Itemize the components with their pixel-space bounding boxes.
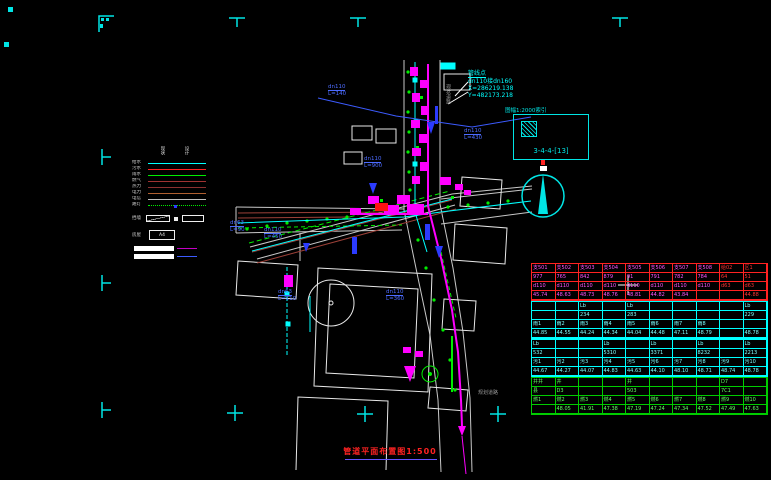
- table-cell: 燃5: [626, 396, 650, 405]
- table-cell: 47.11: [673, 329, 697, 338]
- blue-line-icon: [177, 256, 197, 257]
- pipe-length: L=90: [230, 227, 245, 233]
- pipe-length: L=450: [264, 234, 282, 240]
- table-cell: 532: [532, 349, 556, 358]
- table-cell: 雨4: [603, 320, 627, 329]
- sheet-number: 3-4-4-[13]: [514, 147, 588, 155]
- table-cell: 雨6: [650, 320, 674, 329]
- table-cell: [556, 302, 580, 311]
- pipe-label: dn63L=110: [278, 289, 296, 302]
- pipe-length: L=430: [464, 135, 482, 141]
- table-cell: 燃8: [697, 396, 721, 405]
- legend-item-label: 热力: [132, 184, 148, 189]
- table-cell: [673, 302, 697, 311]
- table-cell: 48.10: [673, 367, 697, 376]
- table-cell: 48.73: [579, 291, 603, 300]
- table-cell: 41.91: [579, 405, 603, 414]
- table-cell: [556, 311, 580, 320]
- table-cell: 44.24: [579, 329, 603, 338]
- red-marker: [375, 203, 388, 211]
- table-cell: 44.63: [626, 367, 650, 376]
- pipe-length: L=360: [386, 296, 404, 302]
- table-cell: [532, 405, 556, 414]
- table-cell: 45.74: [532, 291, 556, 300]
- table-cell: 支504: [603, 264, 627, 273]
- pipe-diameter: dn110: [386, 289, 403, 296]
- table-cell: [720, 340, 744, 349]
- table-cell: 给02: [720, 264, 744, 273]
- pipe-diameter: dn110: [464, 128, 481, 135]
- survey-annotation: 管线点 dn110接dn160 X=286219.138 Y=482173.21…: [468, 70, 513, 99]
- table-cell: 977: [532, 273, 556, 282]
- legend-item: 路灯: [132, 204, 228, 210]
- table-cell: 48.74: [720, 367, 744, 376]
- table-cell: 48.81: [626, 291, 650, 300]
- table-cell: 48.79: [697, 329, 721, 338]
- cad-canvas: 管线点 dn110接dn160 X=286219.138 Y=482173.21…: [0, 0, 771, 480]
- table-block: LbLbLbLbLb5325310337182322213污1污2污3污4污5污…: [531, 339, 768, 377]
- table-cell: 区1: [744, 264, 768, 273]
- table-cell: d110: [556, 282, 580, 291]
- table-cell: [720, 302, 744, 311]
- table-cell: Lb: [532, 340, 556, 349]
- table-cell: [556, 349, 580, 358]
- table-cell: 48.71: [697, 367, 721, 376]
- table-cell: [556, 340, 580, 349]
- roads-layer: [236, 60, 532, 472]
- table-cell: [650, 378, 674, 387]
- table-cell: 污10: [744, 358, 768, 367]
- table-cell: 44.83: [603, 367, 627, 376]
- table-cell: 雨8: [697, 320, 721, 329]
- table-cell: Lb: [626, 302, 650, 311]
- table-cell: [720, 291, 744, 300]
- table-cell: 县: [532, 387, 556, 396]
- survey-y: Y=482173.218: [468, 92, 513, 99]
- table-cell: 44.27: [556, 367, 580, 376]
- table-cell: 污5: [626, 358, 650, 367]
- table-cell: 燃1: [532, 396, 556, 405]
- road-label: 规划道路: [478, 389, 498, 396]
- table-cell: [532, 302, 556, 311]
- table-cell: 燃2: [556, 396, 580, 405]
- green-dots: [245, 70, 509, 391]
- table-cell: [673, 311, 697, 320]
- road-bar-icon: [134, 246, 174, 251]
- table-cell: 229: [744, 311, 768, 320]
- table-cell: [673, 387, 697, 396]
- table-cell: 91: [626, 273, 650, 282]
- legend-line-icon: [148, 199, 206, 200]
- legend-marker-icon: [174, 205, 177, 208]
- north-arrow: [522, 160, 564, 217]
- table-cell: 48.78: [744, 329, 768, 338]
- table-cell: Lb: [579, 302, 603, 311]
- table-cell: [744, 320, 768, 329]
- legend-col2: 设计: [184, 146, 189, 155]
- table-cell: 污7: [673, 358, 697, 367]
- table-cell: 污4: [603, 358, 627, 367]
- table-cell: 44.07: [579, 367, 603, 376]
- table-cell: [744, 378, 768, 387]
- table-cell: Lb: [603, 340, 627, 349]
- table-cell: 44.34: [603, 329, 627, 338]
- road-bar-icon: [134, 254, 174, 259]
- legend-line-icon: [148, 205, 206, 206]
- magenta-line-icon: [177, 248, 197, 249]
- table-cell: 47.38: [603, 405, 627, 414]
- table-cell: 8232: [697, 349, 721, 358]
- table-cell: [603, 387, 627, 396]
- table-cell: d110: [579, 282, 603, 291]
- pipe-diameter: dn63: [230, 220, 244, 227]
- survey-title: 管线点: [468, 70, 486, 78]
- table-cell: 5310: [603, 349, 627, 358]
- table-cell: 43.84: [673, 291, 697, 300]
- table-cell: 782: [673, 273, 697, 282]
- table-block: 支501支502支503支504支505支506支507支508给02区1977…: [531, 263, 768, 301]
- table-cell: 燃6: [650, 396, 674, 405]
- legend-item-label: 燃气: [132, 178, 148, 183]
- road-label: 现状道路: [445, 84, 452, 104]
- table-cell: 污6: [650, 358, 674, 367]
- table-cell: [626, 340, 650, 349]
- table-cell: [697, 291, 721, 300]
- building-box-icon: A4: [149, 230, 175, 240]
- table-cell: D3: [556, 387, 580, 396]
- table-cell: D7: [720, 378, 744, 387]
- table-cell: [626, 349, 650, 358]
- table-cell: d63: [720, 282, 744, 291]
- table-cell: d110: [603, 282, 627, 291]
- table-cell: 503: [626, 387, 650, 396]
- box-icon: [182, 215, 204, 222]
- table-block: 井井井井D7县D35037C1燃1燃2燃3燃4燃5燃6燃7燃8燃9燃1048.0…: [531, 377, 768, 415]
- table-block: LbLbLb234283229雨1雨2雨3雨4雨5雨6雨7雨844.8544.5…: [531, 301, 768, 339]
- table-cell: 784: [697, 273, 721, 282]
- legend-item-label: 电力: [132, 190, 148, 195]
- table-cell: [579, 387, 603, 396]
- pipe-length: L=900: [364, 163, 382, 169]
- table-cell: d63: [744, 282, 768, 291]
- table-cell: 283: [626, 311, 650, 320]
- table-cell: 64: [720, 273, 744, 282]
- table-cell: 765: [556, 273, 580, 282]
- table-cell: [720, 320, 744, 329]
- table-cell: 雨5: [626, 320, 650, 329]
- table-cell: 燃4: [603, 396, 627, 405]
- legend-line-icon: [148, 169, 206, 170]
- legend-item-label: 给水: [132, 160, 148, 165]
- table-cell: [720, 329, 744, 338]
- legend: 现状 设计 给水污水雨水燃气热力电力电信路灯 挡墙 房屋 A4: [132, 146, 228, 266]
- table-cell: [697, 302, 721, 311]
- pipe-label: dn110L=360: [386, 289, 404, 302]
- table-cell: 47.24: [650, 405, 674, 414]
- table-cell: Lb: [744, 340, 768, 349]
- table-cell: [697, 387, 721, 396]
- table-cell: 234: [579, 311, 603, 320]
- table-cell: 燃10: [744, 396, 768, 405]
- hatch-square-icon: [521, 121, 537, 137]
- table-cell: [650, 302, 674, 311]
- table-cell: 支501: [532, 264, 556, 273]
- table-cell: [603, 378, 627, 387]
- table-cell: 44.67: [532, 367, 556, 376]
- table-cell: [579, 340, 603, 349]
- table-cell: 3371: [650, 349, 674, 358]
- magenta-structures: [284, 67, 471, 382]
- table-cell: 井: [626, 378, 650, 387]
- table-cell: 44.85: [532, 329, 556, 338]
- pipe-label: dn63L=90: [230, 220, 245, 233]
- legend-line-icon: [148, 193, 206, 194]
- pipe-diameter: dn110: [328, 84, 345, 91]
- legend-line-icon: [148, 175, 206, 176]
- table-cell: 48.78: [744, 367, 768, 376]
- table-cell: d110: [697, 282, 721, 291]
- table-cell: 燃9: [720, 396, 744, 405]
- detail-caption: 图幅1:2000索引: [505, 106, 546, 114]
- table-cell: Lb: [697, 340, 721, 349]
- table-cell: [673, 340, 697, 349]
- title-underline: [345, 459, 437, 460]
- table-cell: 支505: [626, 264, 650, 273]
- table-cell: [744, 387, 768, 396]
- table-cell: 污9: [720, 358, 744, 367]
- table-cell: 47.19: [626, 405, 650, 414]
- table-cell: [720, 349, 744, 358]
- table-cell: [720, 311, 744, 320]
- table-cell: 47.49: [720, 405, 744, 414]
- detail-index-box: 3-4-4-[13]: [513, 114, 589, 160]
- legend-item-label: 雨水: [132, 172, 148, 177]
- table-cell: [603, 311, 627, 320]
- table-cell: 44.55: [556, 329, 580, 338]
- legend-wall-row: 挡墙: [132, 214, 228, 224]
- table-cell: 48.76: [603, 291, 627, 300]
- table-cell: 48.05: [556, 405, 580, 414]
- elevation-table: 支501支502支503支504支505支506支507支508给02区1977…: [531, 263, 768, 415]
- diagonal-box-icon: [146, 215, 170, 222]
- table-cell: 44.04: [626, 329, 650, 338]
- legend-building-row: 房屋 A4: [132, 230, 228, 241]
- table-cell: [650, 387, 674, 396]
- pipe-length: L=110: [278, 296, 296, 302]
- legend-item-label: 污水: [132, 166, 148, 171]
- table-cell: [650, 311, 674, 320]
- table-cell: d110: [532, 282, 556, 291]
- pipe-diameter: dn110: [264, 227, 281, 234]
- table-cell: [603, 302, 627, 311]
- table-cell: 支508: [697, 264, 721, 273]
- survey-x: X=286219.138: [468, 85, 513, 92]
- table-cell: 44.10: [650, 367, 674, 376]
- table-cell: 污8: [697, 358, 721, 367]
- pipe-label: dn110L=900: [364, 156, 382, 169]
- table-cell: [673, 378, 697, 387]
- table-cell: 污2: [556, 358, 580, 367]
- drawing-title: 管道平面布置图1:500: [330, 446, 450, 457]
- table-cell: 2213: [744, 349, 768, 358]
- table-cell: 791: [650, 273, 674, 282]
- table-cell: 支507: [673, 264, 697, 273]
- table-cell: 雨1: [532, 320, 556, 329]
- table-cell: [579, 349, 603, 358]
- table-cell: 支503: [579, 264, 603, 273]
- table-cell: [697, 378, 721, 387]
- table-cell: 879: [603, 273, 627, 282]
- table-cell: 44.88: [744, 291, 768, 300]
- table-cell: [697, 311, 721, 320]
- table-cell: 井井: [532, 378, 556, 387]
- table-cell: 污1: [532, 358, 556, 367]
- table-cell: 雨2: [556, 320, 580, 329]
- legend-line-icon: [148, 181, 206, 182]
- table-cell: 7C1: [720, 387, 744, 396]
- table-cell: 燃3: [579, 396, 603, 405]
- table-cell: 842: [579, 273, 603, 282]
- legend-item-label: 路灯: [132, 202, 148, 207]
- table-cell: 井: [556, 378, 580, 387]
- table-cell: 44.48: [650, 329, 674, 338]
- table-cell: 雨3: [579, 320, 603, 329]
- pipe-label: dn110L=140: [328, 84, 346, 97]
- pipe-label: dn110L=430: [464, 128, 482, 141]
- table-cell: 48.63: [556, 291, 580, 300]
- table-cell: 燃7: [673, 396, 697, 405]
- survey-pipe: dn110接dn160: [468, 78, 513, 85]
- table-cell: 支502: [556, 264, 580, 273]
- pipe-label: dn110L=450: [264, 227, 282, 240]
- pipe-length: L=140: [328, 91, 346, 97]
- table-cell: 47.63: [744, 405, 768, 414]
- legend-col1: 现状: [160, 146, 165, 155]
- table-cell: 44.82: [650, 291, 674, 300]
- legend-item-label: 电信: [132, 196, 148, 201]
- table-cell: d110: [626, 282, 650, 291]
- table-cell: d110: [673, 282, 697, 291]
- legend-line-icon: [148, 187, 206, 188]
- legend-line-icon: [148, 163, 206, 164]
- table-cell: 47.52: [697, 405, 721, 414]
- table-cell: 雨7: [673, 320, 697, 329]
- table-cell: [532, 311, 556, 320]
- table-cell: 51: [744, 273, 768, 282]
- square-icon: [174, 217, 178, 221]
- pipe-diameter: dn110: [364, 156, 381, 163]
- table-cell: Lb: [744, 302, 768, 311]
- table-cell: 支506: [650, 264, 674, 273]
- table-cell: 污3: [579, 358, 603, 367]
- pipe-diameter: dn63: [278, 289, 292, 296]
- table-cell: 47.34: [673, 405, 697, 414]
- table-cell: [673, 349, 697, 358]
- table-cell: d110: [650, 282, 674, 291]
- table-cell: Lb: [650, 340, 674, 349]
- table-cell: [579, 378, 603, 387]
